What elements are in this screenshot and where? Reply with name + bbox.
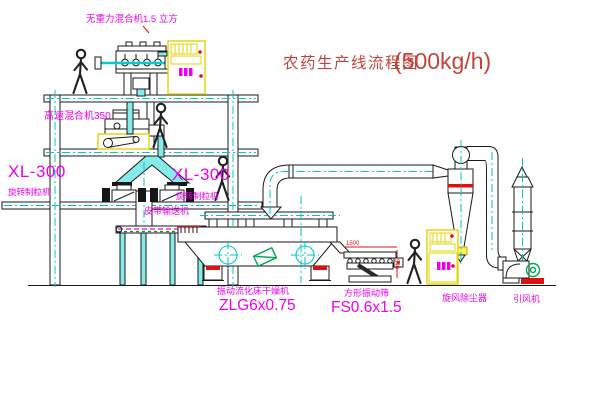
vibrating-sieve (330, 242, 403, 282)
label-fan: 引风机 (513, 293, 540, 304)
gravity-free-mixer (95, 26, 172, 96)
label-dryer-model: ZLG6x0.75 (219, 297, 296, 314)
dimension-sieve-length: 1500 (346, 241, 360, 247)
person-figure (74, 50, 88, 93)
label-cyclone: 旋风除尘器 (442, 292, 487, 303)
label-gravity-mixer: 无重力混合机1.5 立方 (86, 13, 178, 25)
control-cabinet-upper (168, 41, 205, 94)
label-granulator-left-model: XL-300 (8, 162, 66, 181)
label-granulator-right-name: 旋转制粒机 (176, 191, 219, 201)
label-high-speed-mixer: 高速混合机350 (44, 109, 111, 122)
label-granulator-right-model: XL-300 (172, 165, 230, 184)
induced-draft-fan (498, 257, 544, 284)
label-sieve-model: FS0.6x1.5 (331, 299, 402, 316)
label-sieve-name: 方形振动筛 (344, 287, 389, 298)
drawing-title-capacity: (500kg/h) (394, 48, 491, 74)
granulator-left (102, 185, 146, 202)
label-granulator-left-name: 旋转制粒机 (8, 187, 51, 197)
person-figure (408, 240, 422, 283)
control-cabinet-lower (427, 230, 458, 284)
dimension-sieve-height: 540 (393, 259, 399, 270)
label-dryer-name: 振动流化床干燥机 (217, 285, 289, 296)
cad-flowchart-drawing: 农药生产线流程图 (500kg/h) 无重力混合机1.5 立方 高速混合机350… (0, 0, 600, 403)
label-belt-conveyor: 皮带输送机 (144, 205, 189, 216)
exhaust-duct (261, 165, 446, 219)
